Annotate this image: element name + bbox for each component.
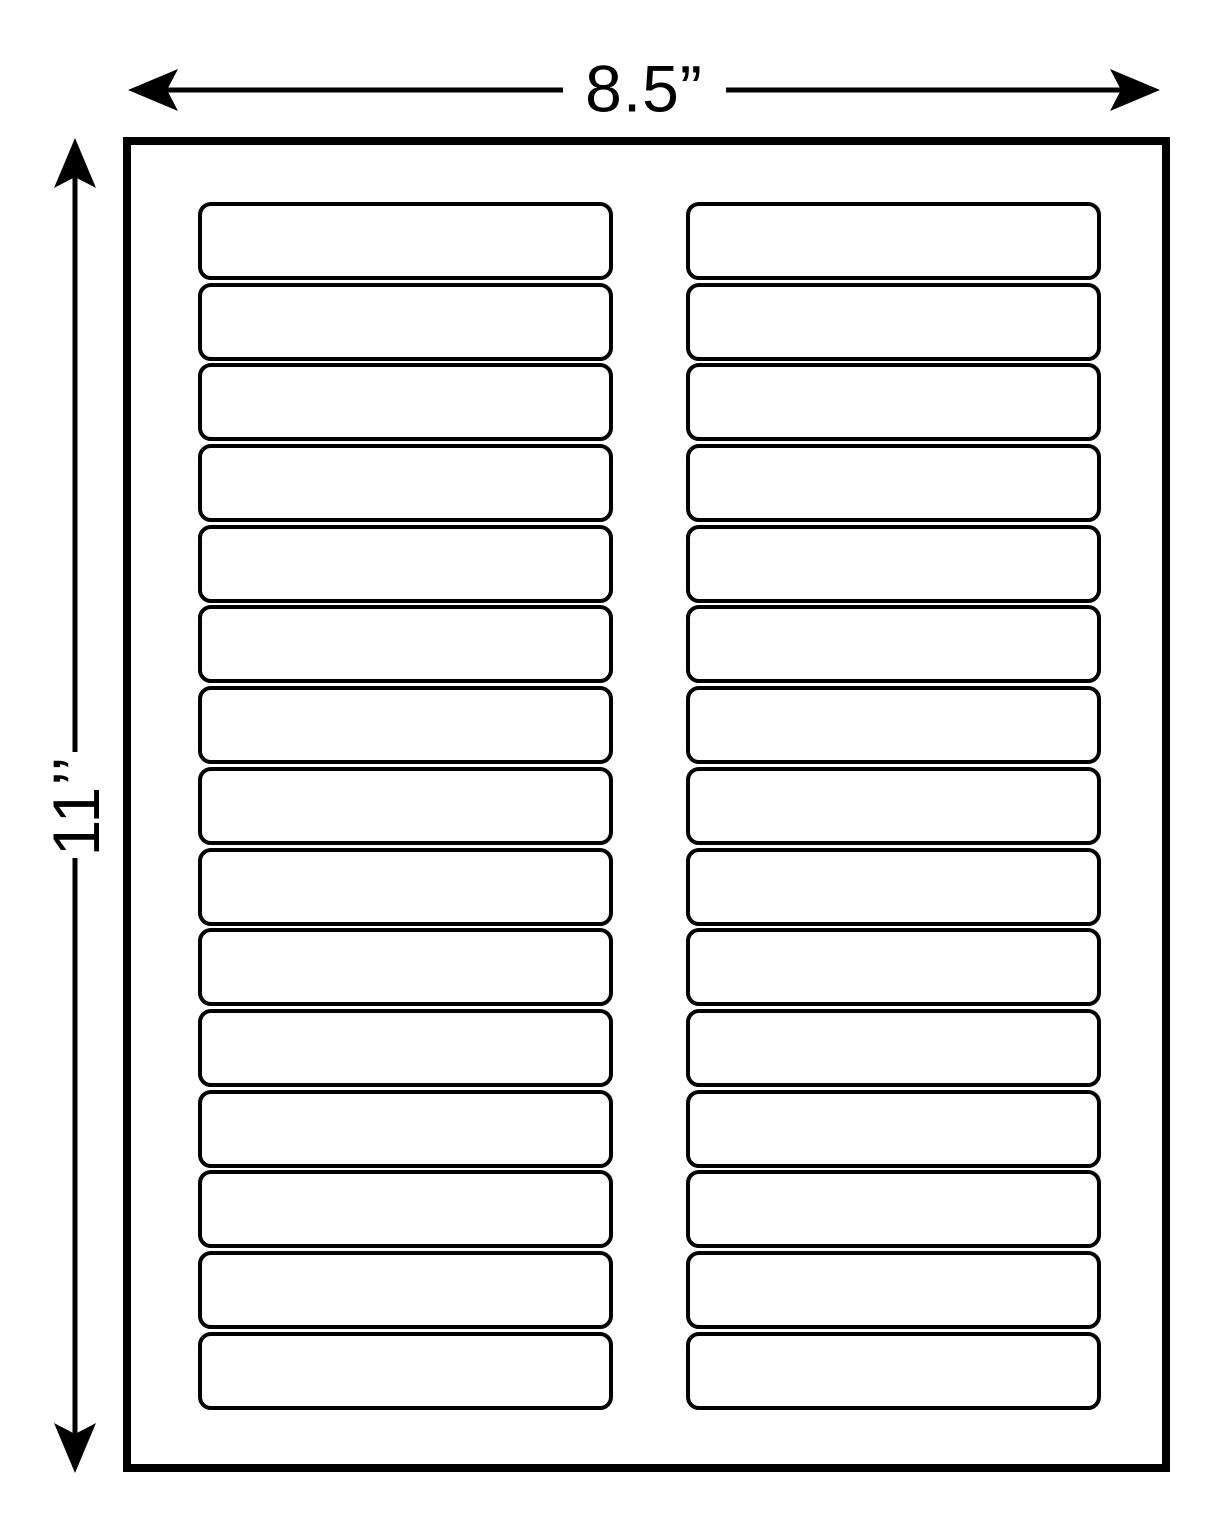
arrowhead-up-icon	[54, 138, 96, 188]
label-cell	[198, 283, 613, 361]
label-cell	[686, 848, 1101, 926]
label-cell	[198, 202, 613, 280]
label-cell	[686, 1090, 1101, 1168]
label-cell	[198, 1251, 613, 1329]
label-cell	[686, 1332, 1101, 1410]
label-cell	[686, 686, 1101, 764]
label-cell	[686, 767, 1101, 845]
label-cell	[686, 283, 1101, 361]
arrowhead-right-icon	[1110, 69, 1160, 111]
label-cell	[198, 444, 613, 522]
height-dimension-label: 11’’	[43, 756, 109, 857]
label-cell	[686, 363, 1101, 441]
label-cell	[686, 1170, 1101, 1248]
label-cell	[198, 848, 613, 926]
label-cell	[686, 1009, 1101, 1087]
label-cell	[686, 525, 1101, 603]
label-cell	[686, 1251, 1101, 1329]
arrowhead-down-icon	[54, 1423, 96, 1473]
label-cell	[686, 202, 1101, 280]
label-sheet	[123, 137, 1170, 1472]
label-cell	[198, 1170, 613, 1248]
label-cell	[198, 525, 613, 603]
label-cell	[198, 686, 613, 764]
label-cell	[198, 605, 613, 683]
label-cell	[686, 928, 1101, 1006]
label-cell	[686, 605, 1101, 683]
label-column-right	[686, 202, 1101, 1410]
label-cell	[198, 767, 613, 845]
label-cell	[686, 444, 1101, 522]
arrowhead-left-icon	[128, 69, 178, 111]
label-cell	[198, 1009, 613, 1087]
label-column-left	[198, 202, 613, 1410]
label-cell	[198, 928, 613, 1006]
label-cell	[198, 1090, 613, 1168]
label-cell	[198, 363, 613, 441]
label-cell	[198, 1332, 613, 1410]
label-sheet-template-diagram: 8.5” 11’’	[0, 0, 1208, 1536]
width-dimension-label: 8.5”	[585, 55, 703, 121]
